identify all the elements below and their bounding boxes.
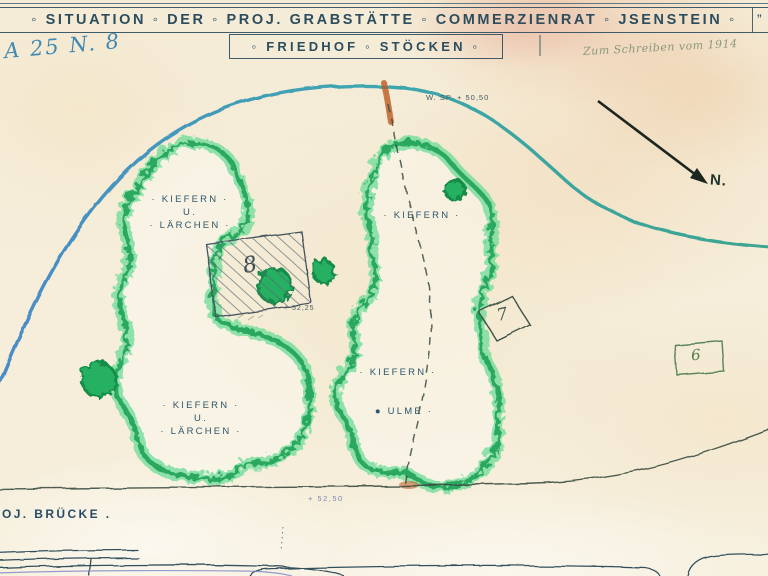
north-arrow bbox=[598, 101, 708, 184]
tree-circle bbox=[79, 360, 113, 394]
pencil-ticks bbox=[238, 314, 263, 320]
dotted-tick bbox=[281, 527, 283, 552]
tree-circle bbox=[442, 177, 462, 197]
grove-label-northeast: · KIEFERN · bbox=[384, 209, 461, 222]
site-plan-sheet: ◦ SITUATION ◦ DER ◦ PROJ. GRABSTÄTTE ◦ C… bbox=[0, 0, 768, 576]
grove-label-southwest: · KIEFERN · U. · LÄRCHEN · bbox=[160, 399, 241, 438]
sheet-title: ◦ SITUATION ◦ DER ◦ PROJ. GRABSTÄTTE ◦ C… bbox=[31, 12, 736, 28]
title-end-mark: ” bbox=[757, 11, 762, 27]
elevation-plot8: + 52,25 bbox=[284, 305, 315, 312]
top-rule bbox=[0, 3, 768, 4]
sheet-subtitle: ◦ FRIEDHOF ◦ STÖCKEN ◦ bbox=[252, 39, 481, 54]
bottom-structures bbox=[0, 550, 768, 576]
orange-ground-mark bbox=[399, 481, 419, 489]
water-level-label: W. SP. + 50,50 bbox=[426, 93, 489, 102]
subtitle-banner: ◦ FRIEDHOF ◦ STÖCKEN ◦ bbox=[229, 34, 503, 59]
grove-label-middle: · KIEFERN · bbox=[360, 366, 437, 379]
bridge-label: OJ. BRÜCKE . bbox=[2, 507, 111, 521]
grove-label-northwest: · KIEFERN · U. · LÄRCHEN · bbox=[149, 193, 230, 232]
blue-plot-line bbox=[0, 571, 292, 576]
grove-east bbox=[332, 140, 496, 484]
title-right-divider bbox=[752, 7, 753, 33]
grove-outlines bbox=[79, 140, 496, 484]
north-label: N. bbox=[709, 171, 727, 189]
tree-circle bbox=[310, 258, 332, 280]
orange-path-mark bbox=[384, 83, 391, 122]
map-linework bbox=[0, 0, 768, 576]
elevation-path: + 52,50 bbox=[308, 494, 344, 503]
plot6-number: 6 bbox=[690, 346, 701, 365]
elm-tree-label: ● ULME · bbox=[375, 405, 433, 418]
